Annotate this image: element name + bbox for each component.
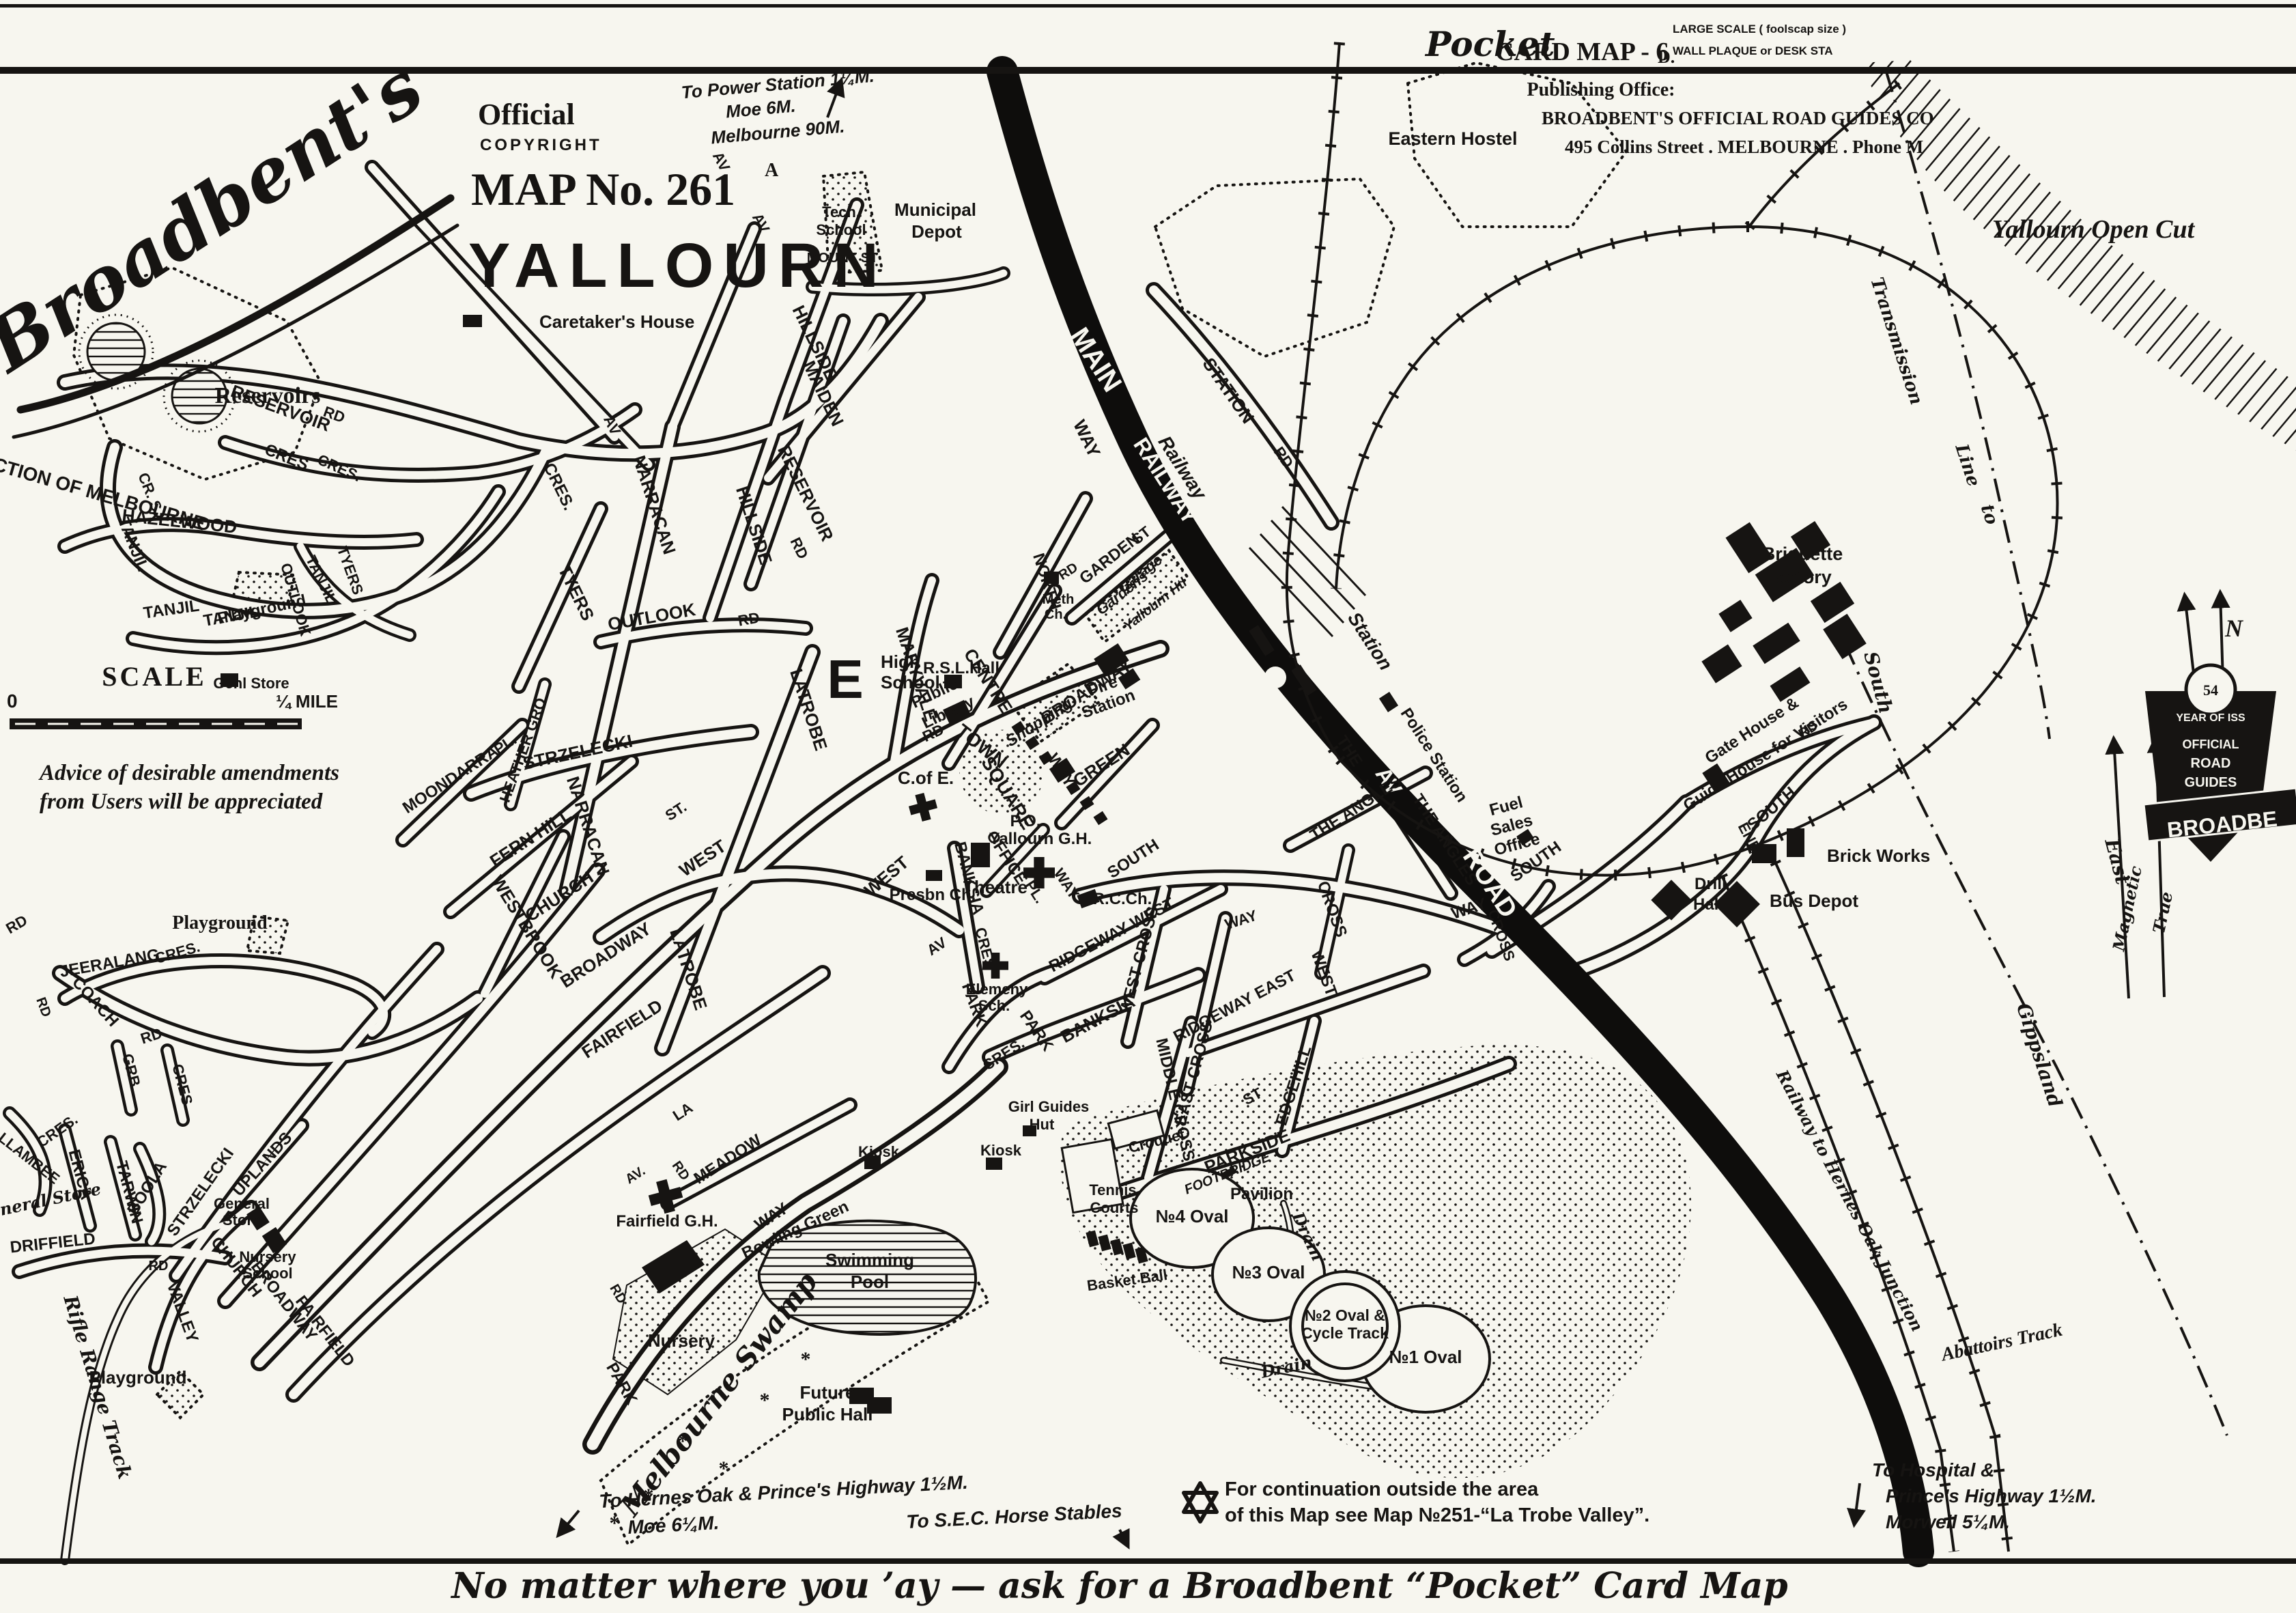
map-label: №2 Oval & xyxy=(1305,1306,1385,1324)
map-label: * xyxy=(760,1389,770,1412)
map-label: Pool xyxy=(851,1272,889,1292)
map-label: * xyxy=(678,1430,688,1453)
map-label: GUIDES xyxy=(2185,775,2237,790)
map-label: To Hospital & xyxy=(1872,1459,1994,1481)
map-label: Factory xyxy=(1765,567,1832,587)
building xyxy=(1787,828,1804,857)
map-label: Briquette xyxy=(1762,544,1843,564)
map-label: WALL PLAQUE or DESK STA xyxy=(1673,44,1833,57)
map-label: LARGE SCALE ( foolscap size ) xyxy=(1673,23,1846,36)
map-label: C.of E. xyxy=(898,768,954,788)
map-label: Eastern Hostel xyxy=(1388,128,1517,149)
map-label: * xyxy=(644,1485,654,1507)
map-label: For continuation outside the area xyxy=(1225,1478,1539,1500)
building xyxy=(986,1158,1002,1170)
map-label: R.C.Ch. xyxy=(1093,890,1152,908)
map-label: Genl Store xyxy=(213,675,289,692)
border-rule xyxy=(0,4,2296,8)
border-rule xyxy=(0,67,2296,74)
map-label: Swimming xyxy=(825,1250,914,1270)
map-label: Depot xyxy=(911,221,962,242)
level-crossing-circle xyxy=(1264,667,1286,688)
map-label: N xyxy=(2224,615,2244,642)
map-label: * xyxy=(719,1457,729,1480)
building xyxy=(463,315,482,327)
map-label: from Users will be appreciated xyxy=(40,789,323,814)
map-label: 54 xyxy=(2203,682,2218,699)
map-label: Kiosk xyxy=(980,1142,1022,1159)
map-label: MAP No. 261 xyxy=(471,163,735,215)
yallourn-map-svg: E PocketCARD MAP - 6D.LARGE SCALE ( fool… xyxy=(0,0,2296,1613)
map-label: Pavilion xyxy=(1230,1185,1293,1203)
map-label: SCALE xyxy=(102,661,206,692)
map-label: №1 Oval xyxy=(1389,1347,1462,1367)
map-label: Bus Depot xyxy=(1770,890,1858,911)
map-label: COPYRIGHT xyxy=(480,136,602,154)
map-label: Public Hall xyxy=(782,1404,873,1425)
map-label: Playground xyxy=(89,1367,186,1388)
map-label: BROADBENT'S OFFICIAL ROAD GUIDES CO xyxy=(1542,108,1934,128)
map-sheet: E PocketCARD MAP - 6D.LARGE SCALE ( fool… xyxy=(0,0,2296,1613)
map-label: Courts xyxy=(1090,1199,1139,1216)
map-label: ¼ MILE xyxy=(276,691,338,712)
map-label: Yallourn Open Cut xyxy=(1992,215,2196,244)
map-label: Playground xyxy=(172,912,268,934)
map-label: Hall xyxy=(1693,895,1723,914)
map-label: 0 xyxy=(7,690,18,712)
map-label: Future xyxy=(800,1382,855,1403)
map-label: Hut xyxy=(1030,1116,1055,1133)
map-label: Tennis xyxy=(1089,1181,1136,1198)
map-label: Cycle Track xyxy=(1301,1324,1389,1342)
map-label: Store xyxy=(223,1211,261,1229)
paper-background xyxy=(0,0,2296,1613)
map-label: Elemeny xyxy=(966,981,1028,998)
map-label: OFFICIAL xyxy=(2183,738,2239,751)
map-label: * xyxy=(610,1512,620,1534)
map-label: Brick Works xyxy=(1827,845,1930,866)
map-label: P.O. xyxy=(1010,812,1041,830)
map-label: ROAD xyxy=(2191,756,2231,771)
map-label: School xyxy=(816,221,866,238)
map-label: Kiosk xyxy=(858,1143,900,1160)
building xyxy=(926,870,942,881)
map-label: №3 Oval xyxy=(1232,1262,1305,1282)
map-label: Yallourn G.H. xyxy=(989,830,1092,848)
map-label: Morwell 5¼M. xyxy=(1886,1511,2010,1532)
map-label: A xyxy=(765,160,779,181)
map-label: General xyxy=(214,1195,270,1212)
map-label: Publishing Office: xyxy=(1527,79,1675,100)
map-label: * xyxy=(801,1348,811,1371)
map-label: Nursery xyxy=(648,1330,715,1351)
map-label: Drill xyxy=(1695,875,1727,893)
map-label: Girl Guides xyxy=(1008,1098,1090,1115)
map-label: No matter where you ’ay — ask for a Broa… xyxy=(450,1565,1788,1607)
map-label: of this Map see Map №251-“La Trobe Valle… xyxy=(1225,1504,1649,1526)
map-label: Nursery xyxy=(239,1248,296,1265)
map-label: MOUNT ST xyxy=(807,251,878,266)
map-label: Fairfield G.H. xyxy=(616,1212,718,1231)
high-school-building: E xyxy=(827,649,863,710)
map-label: Prince's Highway 1½M. xyxy=(1886,1485,2097,1506)
map-label: №4 Oval xyxy=(1155,1206,1228,1226)
map-label: CARD MAP - 6 xyxy=(1495,38,1669,66)
map-label: Municipal xyxy=(894,199,976,220)
map-label: Caretaker's House xyxy=(539,311,694,332)
map-label: 495 Collins Street . MELBOURNE . Phone M xyxy=(1565,137,1923,157)
map-label: YALLOURN xyxy=(468,231,888,300)
map-label: RD xyxy=(149,1259,169,1274)
map-label: Advice of desirable amendments xyxy=(38,761,339,785)
map-label: Official xyxy=(478,98,575,131)
map-label: School xyxy=(242,1265,292,1282)
map-label: Tech. xyxy=(822,204,860,221)
map-label: YEAR OF ISS xyxy=(2176,712,2245,724)
map-label: Sch. xyxy=(978,997,1010,1014)
border-rule xyxy=(0,1558,2296,1564)
